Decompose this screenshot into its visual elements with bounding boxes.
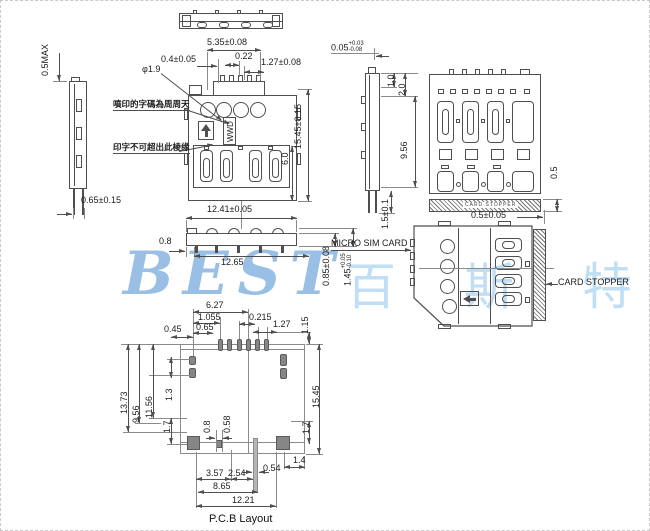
rear-tab [475, 69, 480, 75]
side-view-leg [375, 191, 377, 213]
card-dot [525, 297, 530, 303]
dim-line [206, 438, 215, 439]
card-contact-slot [502, 259, 515, 267]
extension-line [218, 59, 219, 83]
side-view-tab [368, 67, 376, 74]
dim-label: 6.27 [206, 301, 224, 311]
top-strip-bump [241, 22, 251, 28]
extension-line [167, 444, 187, 445]
contact-pad [255, 339, 260, 351]
top-strip-bump [263, 22, 273, 28]
dim-line [196, 506, 276, 507]
pin [229, 75, 234, 82]
contact-dome [233, 102, 249, 118]
pin [247, 75, 252, 82]
extension-line [186, 220, 187, 232]
dim-line [284, 467, 305, 468]
dim-label: 12.21 [232, 496, 255, 506]
rear-mid-pad [517, 149, 530, 160]
side-tab [184, 153, 188, 165]
extension-line [381, 187, 418, 188]
dim-label: 2.54 [228, 469, 246, 479]
dim-line [557, 199, 558, 212]
dim-label: 1.7 [302, 421, 312, 434]
side-view-body [365, 73, 380, 191]
extension-line [299, 228, 357, 229]
extension-line [543, 199, 562, 200]
dim-line [197, 66, 217, 67]
rear-detail [486, 89, 492, 94]
top-strip-bump [197, 22, 207, 28]
front-notch [189, 85, 202, 95]
dim-line [198, 492, 258, 493]
dim-label: 0.54 [263, 464, 281, 474]
edge-view-hook [259, 246, 262, 253]
contact-dome [250, 102, 266, 118]
dim-line [57, 214, 72, 215]
side-view-tab [71, 77, 80, 82]
extension-line [296, 220, 297, 232]
extension-line [381, 87, 397, 88]
side-view-bump [361, 96, 366, 104]
extension-line [543, 211, 562, 212]
side-view-line [74, 84, 75, 186]
card-view-bump [410, 239, 415, 247]
pcb-line [180, 349, 305, 350]
dim-line [128, 344, 129, 432]
extension-line [276, 452, 277, 508]
pin-shroud [213, 81, 265, 96]
card-view-tab [498, 324, 511, 329]
contact [223, 158, 230, 178]
extension-line [123, 432, 187, 433]
rear-dot [506, 119, 510, 123]
card-view-line [490, 228, 491, 324]
dim-line [223, 438, 232, 439]
card-stopper-bar [533, 229, 546, 321]
dim-line [207, 50, 261, 51]
edge-view-bump [228, 228, 240, 234]
extension-line [306, 454, 323, 455]
edge-view-hook [195, 246, 198, 253]
dim-line [239, 324, 255, 325]
contact-pad [227, 339, 232, 351]
card-contact-slot [502, 241, 515, 249]
dim-line [292, 146, 293, 201]
rear-detail [438, 89, 444, 94]
leader-line [546, 284, 558, 285]
card-view-tab [438, 324, 451, 329]
dim-line [171, 357, 172, 378]
dim-label: 1.27 [273, 320, 291, 330]
dim-label: 15.45±0.15 [294, 104, 304, 149]
contact-pad [280, 354, 287, 366]
leader-line [331, 250, 411, 251]
dim-label: 12.41±0.05 [207, 205, 252, 215]
contact-pad [189, 356, 196, 365]
extension-line [267, 327, 268, 339]
dim-label: φ1.9 [142, 65, 160, 75]
top-strip-tab [193, 10, 197, 14]
rear-detail [510, 89, 516, 94]
eject-arrow-box [460, 291, 479, 306]
contact-pad [237, 339, 242, 351]
top-strip-detail [272, 15, 280, 27]
dim-label: 0.65 [196, 323, 214, 333]
dim-label: 1.0 [387, 74, 397, 87]
contact-pad [218, 339, 223, 351]
dim-label: 11.56 [145, 396, 155, 418]
top-strip-bump [219, 22, 229, 28]
rear-dot [456, 182, 461, 187]
dim-line [244, 72, 264, 73]
dim-label: 0.215 [249, 313, 272, 323]
dim-line [376, 56, 389, 57]
rear-tab [501, 69, 506, 75]
extension-line [186, 247, 187, 257]
rear-contact [437, 171, 454, 192]
dim-label: 1.7 [163, 420, 173, 433]
extension-line [216, 430, 217, 452]
edge-view-bump [272, 228, 284, 234]
contact [252, 158, 259, 178]
rear-detail [441, 165, 449, 169]
card-view-tab [438, 221, 451, 226]
top-strip-tab [237, 10, 241, 14]
dim-label: 0.4±0.05 [161, 55, 196, 65]
contact-detail [238, 146, 243, 150]
extension-line [374, 48, 375, 60]
rear-contact [462, 171, 479, 192]
rear-detail [462, 89, 468, 94]
card-contact-slot [502, 277, 515, 285]
pin [220, 75, 225, 82]
extension-line [222, 430, 223, 452]
arrow-up-icon [205, 130, 208, 137]
extension-line [135, 423, 161, 424]
card-view-outline [406, 219, 546, 334]
dim-label: 12.65 [221, 258, 244, 268]
rear-detail [524, 89, 530, 94]
dim-label: 1.45+0.05-0.10 [341, 253, 351, 286]
rear-dot [481, 119, 485, 123]
pcb-line [248, 344, 249, 454]
rear-contact [487, 171, 504, 192]
edge-view-tab [187, 228, 197, 234]
rear-contact-slot [467, 109, 474, 135]
note-print-limit: 印字不可超出此棱缘 [113, 143, 190, 154]
contact-dome [440, 279, 455, 294]
dim-line [194, 256, 309, 257]
extension-line [73, 208, 74, 219]
extension-line [298, 201, 312, 202]
dim-line [308, 89, 309, 201]
edge-view-hook [215, 246, 218, 253]
side-view-detail [76, 99, 82, 112]
dim-line [196, 479, 231, 480]
dim-line [253, 332, 277, 333]
top-strip-tab [215, 10, 219, 14]
card-label: MICRO SIM CARD [331, 239, 408, 249]
dim-label: 0.8 [203, 420, 213, 433]
card-stopper-bar-label: CARD STOPPER [463, 202, 518, 208]
dim-label: 0.05+0.03-0.08 [331, 41, 364, 54]
dim-label: 0.85±0.08 [322, 246, 332, 286]
dim-label: 1.4 [293, 456, 306, 466]
contact-pad [246, 339, 251, 351]
dim-label: 13.73 [120, 391, 130, 414]
dim-label: 0.22 [235, 52, 253, 62]
rear-contact [512, 101, 534, 143]
dim-label: 0.5MAX [41, 44, 51, 76]
watermark-best: BEST [123, 239, 343, 309]
top-strip-tab [259, 10, 263, 14]
rear-contact-slot [492, 109, 499, 135]
dim-label: 1.5±0.1 [381, 199, 391, 229]
dim-label: 0.5±0.05 [471, 211, 506, 221]
note-marking: 噴印的字碼為周周天 [113, 100, 190, 111]
dim-label: 5.35±0.08 [207, 38, 247, 48]
rear-tab [462, 69, 467, 75]
dim-line [415, 96, 416, 187]
dim-label: 1.15 [301, 316, 311, 334]
dim-label: 6.0 [281, 152, 291, 165]
dim-label: 0.58 [223, 415, 233, 433]
stopper-label: CARD STOPPER [558, 278, 629, 288]
dim-line [186, 218, 297, 219]
arrow-left-icon [469, 298, 476, 301]
contact-dome [442, 299, 457, 314]
side-view-detail [76, 155, 82, 168]
dim-label: 9.56 [400, 141, 410, 159]
extension-line [84, 208, 85, 219]
rear-mid-pad [465, 149, 478, 160]
dim-label: 15.45 [312, 385, 322, 408]
engineering-drawing: BEST 百斯特 0.5MAX 0.65±0.15 WWD [0, 0, 650, 531]
rear-contact-slot [442, 109, 449, 135]
side-tab [297, 153, 301, 165]
edge-view-hook [237, 246, 240, 253]
dim-label: 1.3 [165, 388, 175, 401]
side-view-line [369, 75, 370, 189]
contact-pad [189, 368, 196, 378]
dim-line [391, 191, 392, 213]
card-view-bump [410, 278, 415, 286]
mount-pad [276, 436, 290, 450]
rear-tab [520, 69, 530, 75]
card-view-bump [410, 252, 415, 260]
rear-detail [498, 89, 504, 94]
card-dot [525, 261, 530, 267]
edge-view-bump [206, 228, 218, 234]
dim-label: 8.65 [213, 482, 231, 492]
mount-pad [187, 436, 200, 450]
extension-line [149, 418, 187, 419]
contact-dome [440, 239, 455, 254]
marking-text: WWD [227, 121, 237, 142]
contact-dome [440, 259, 455, 274]
extension-line [239, 61, 240, 77]
contact-pad [264, 339, 269, 351]
dim-line [171, 337, 193, 338]
dim-label: 9.56 [132, 405, 142, 423]
card-view-tab [498, 221, 511, 226]
dim-line [225, 65, 239, 66]
dim-line [193, 333, 213, 334]
side-view-detail [76, 127, 82, 140]
dim-line [517, 217, 543, 218]
rear-detail [467, 165, 475, 169]
rear-contact [512, 171, 534, 192]
side-view-bump [361, 151, 366, 159]
dim-line [59, 53, 60, 81]
rear-dot [506, 182, 511, 187]
rear-detail [474, 89, 480, 94]
dim-label: 2.0 [398, 83, 408, 96]
dim-label: 0.65±0.15 [81, 196, 121, 206]
card-contact-slot [502, 295, 515, 303]
extension-line [207, 52, 208, 90]
top-strip-detail [182, 15, 191, 27]
dim-label: 0.5 [550, 166, 560, 179]
pcb-caption: P.C.B Layout [209, 513, 272, 525]
dim-label: 3.57 [206, 469, 224, 479]
dim-label: 0.45 [164, 325, 182, 335]
edge-view-outline [186, 233, 297, 246]
rear-detail [493, 165, 501, 169]
dim-label: 1.27±0.08 [261, 58, 301, 68]
card-view-bump [410, 265, 415, 273]
dim-label: 0.8 [159, 237, 172, 247]
rear-mid-pad [439, 149, 452, 160]
dim-line [169, 251, 185, 252]
rear-tab [488, 69, 493, 75]
edge-view-hook [281, 246, 284, 253]
dim-line [231, 479, 253, 480]
side-view-bump [361, 123, 366, 131]
rear-detail [450, 89, 456, 94]
contact-pad [280, 368, 287, 379]
edge-view-bump [250, 228, 262, 234]
rear-mid-pad [491, 149, 504, 160]
insert-arrow-box [198, 121, 214, 140]
rear-dot [456, 119, 460, 123]
pad-tail [253, 438, 258, 493]
contact [203, 158, 210, 178]
side-view-leg [368, 191, 370, 213]
rear-dot [481, 182, 486, 187]
rear-tab [449, 69, 454, 75]
contact [272, 158, 279, 178]
extension-line [53, 81, 67, 82]
card-view-line [458, 228, 459, 324]
